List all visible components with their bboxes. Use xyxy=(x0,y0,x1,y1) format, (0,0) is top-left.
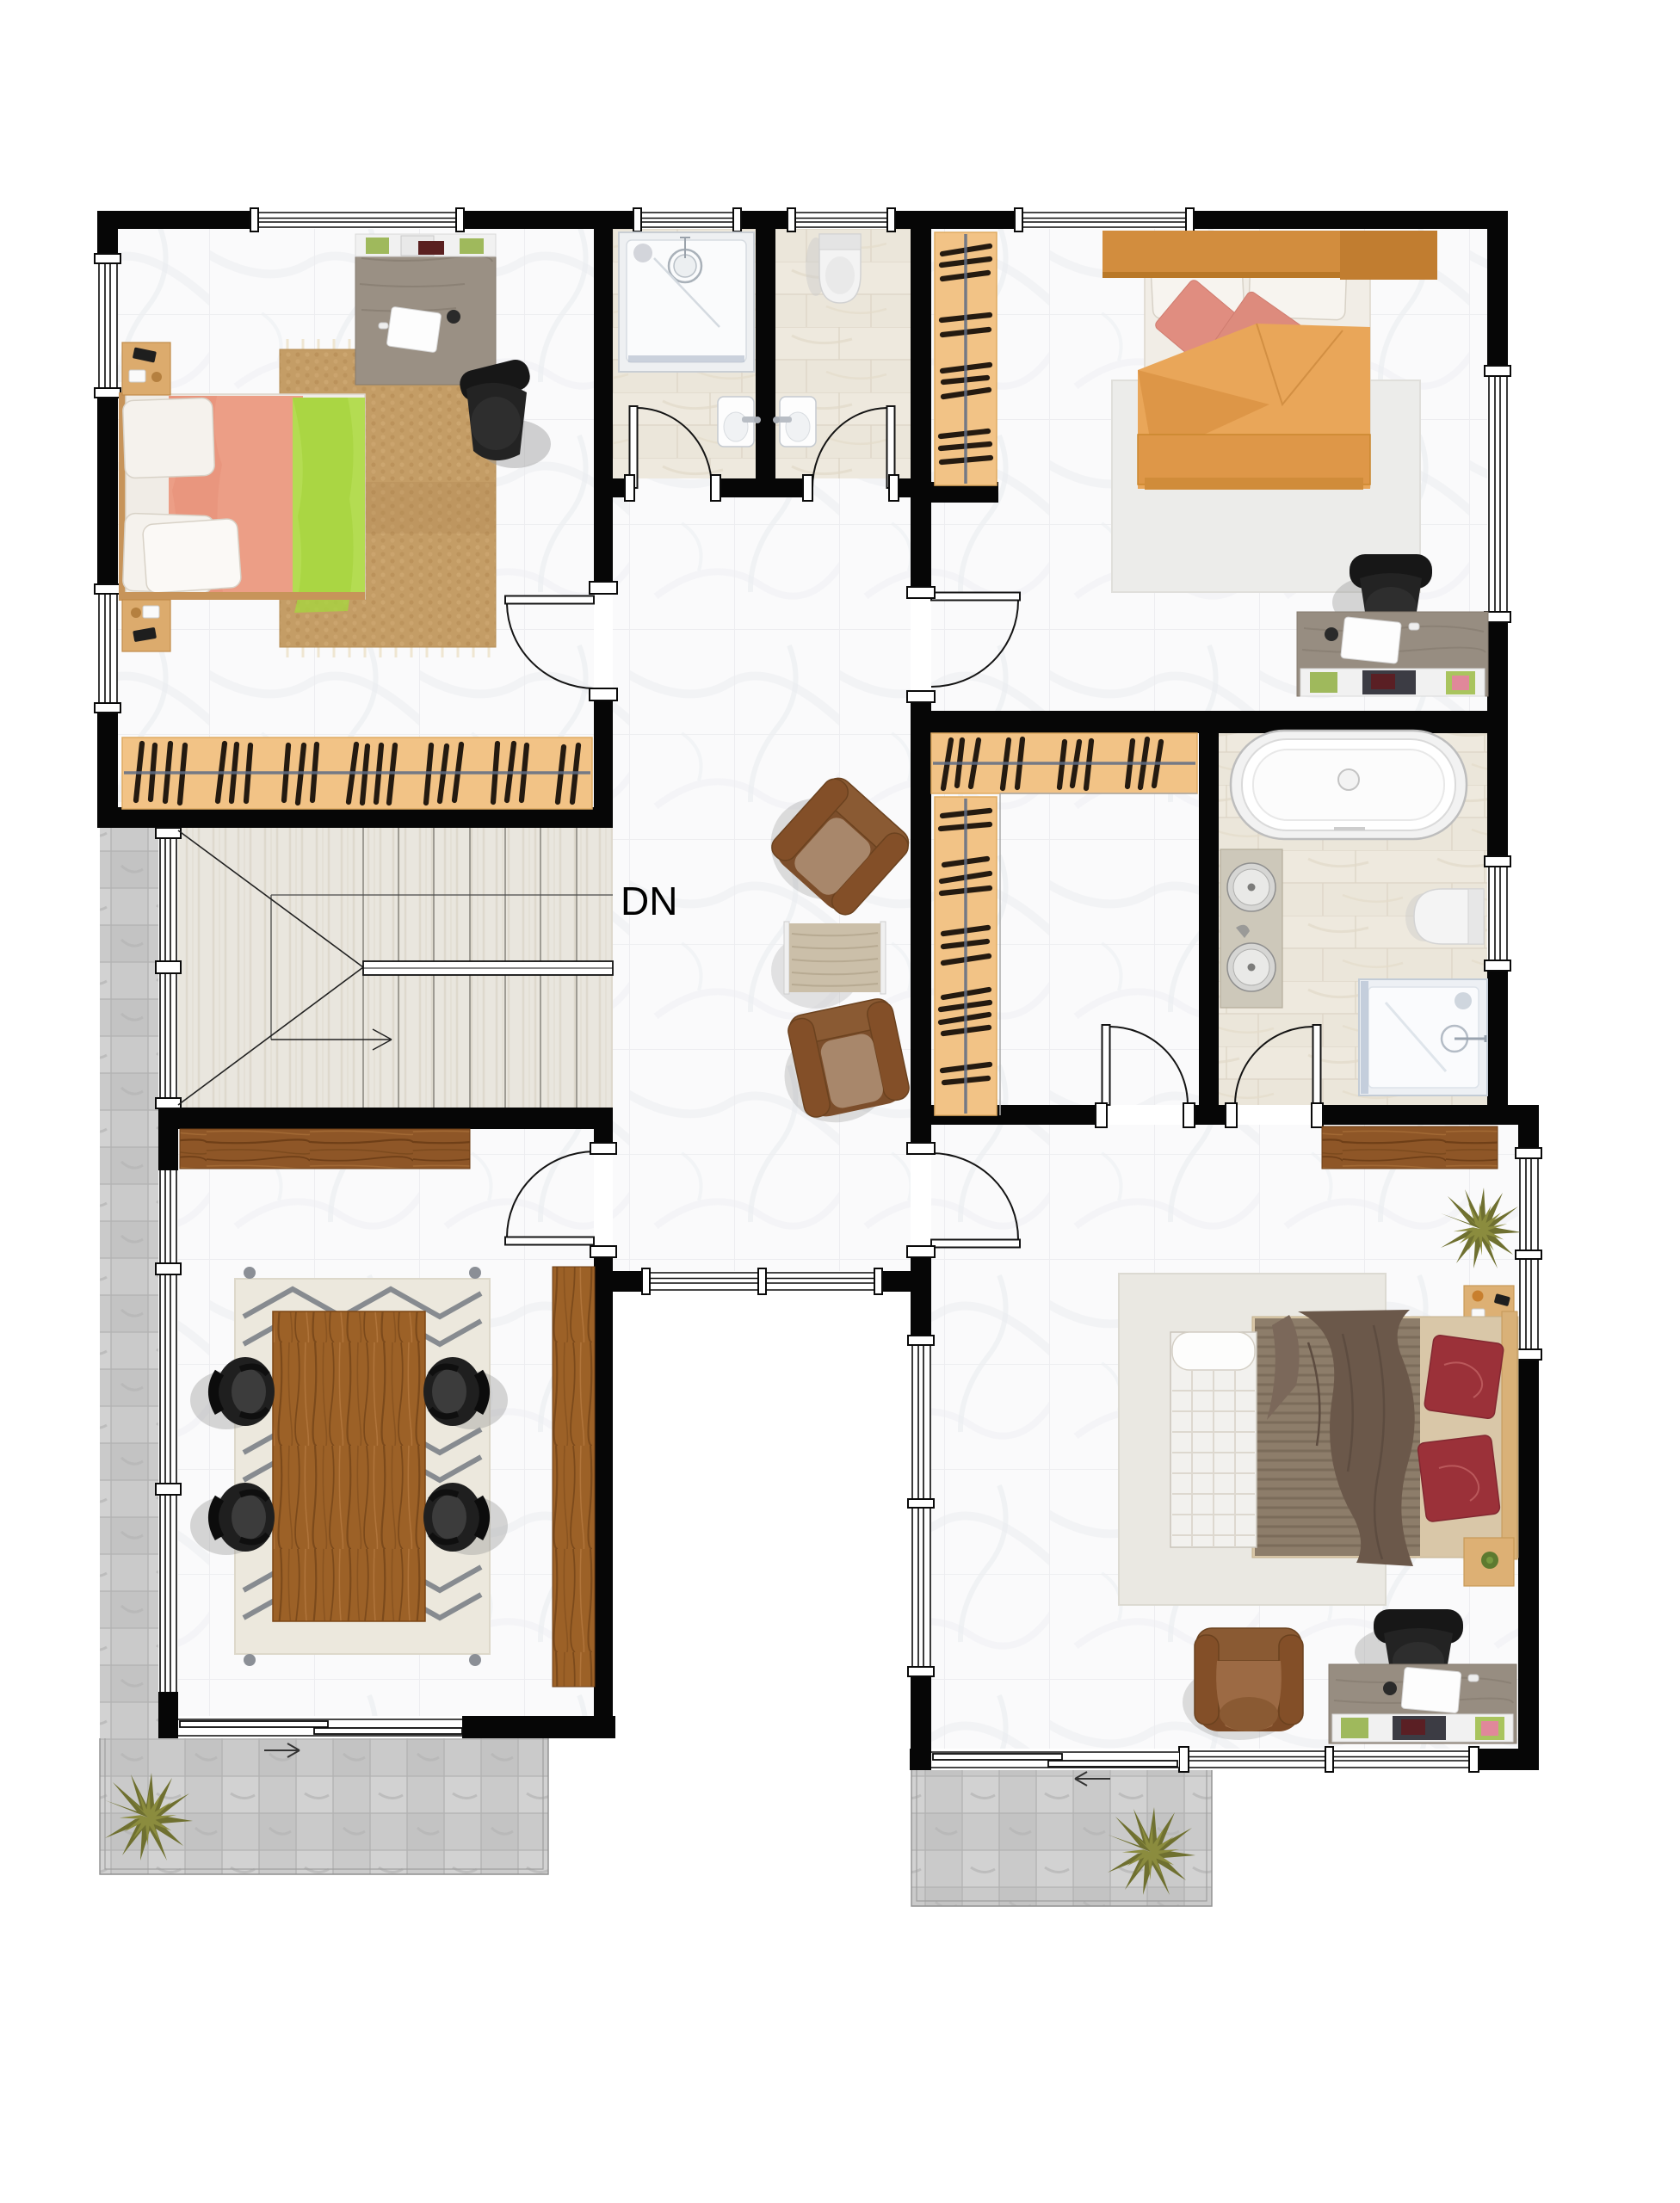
svg-text:DN: DN xyxy=(621,879,677,923)
